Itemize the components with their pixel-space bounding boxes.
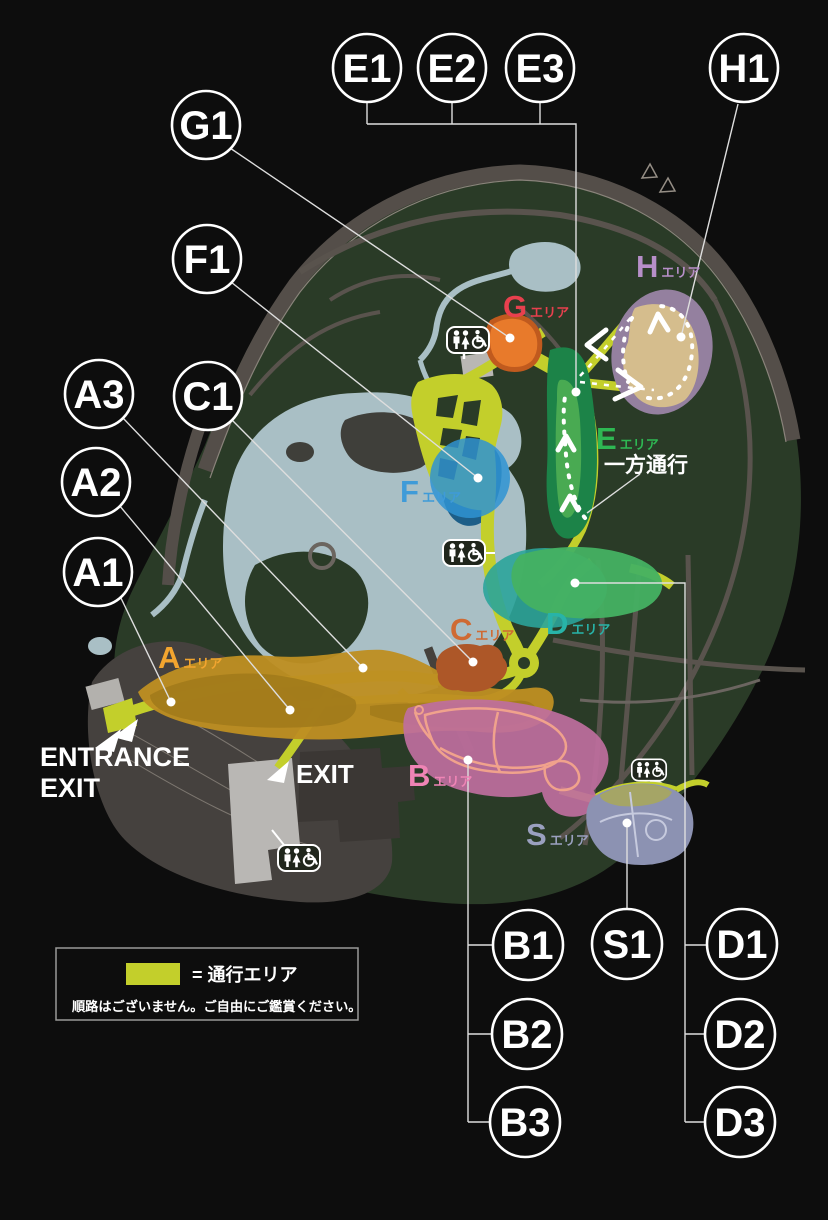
legend-box: = 通行エリア 順路はございません。ご自由にご鑑賞ください。 [56,948,361,1020]
svg-text:E3: E3 [516,47,565,91]
marker-d2: D2 [705,999,775,1069]
marker-g1: G1 [172,91,240,159]
marker-d1: D1 [707,909,777,979]
marker-a2: A2 [62,448,130,516]
restroom-icon [632,759,666,780]
marker-c1: C1 [174,362,242,430]
area-g-shape [487,316,539,369]
callout-dot-s1 [623,819,632,828]
marker-f1: F1 [173,225,241,293]
callout-dot-a3 [359,664,368,673]
callout-dot-b [464,756,473,765]
marker-h1: H1 [710,34,778,102]
svg-text:S1: S1 [603,923,652,967]
svg-text:D3: D3 [714,1101,765,1145]
svg-text:G1: G1 [179,104,232,148]
svg-text:B2: B2 [501,1013,552,1057]
callout-dot-g1 [506,334,515,343]
svg-text:D1: D1 [716,923,767,967]
svg-text:C1: C1 [182,375,233,419]
svg-text:E2: E2 [428,47,477,91]
svg-text:E1: E1 [343,47,392,91]
svg-text:B1: B1 [502,924,553,968]
svg-text:B3: B3 [499,1101,550,1145]
marker-a1: A1 [64,538,132,606]
park-illumination-map: E1 E2 E3 H1 G1 F1 A3 C1 A2 A1 B1 S1 D1 B… [0,0,828,1220]
marker-e3: E3 [506,34,574,102]
marker-s1: S1 [592,909,662,979]
callout-dot-e [572,388,581,397]
marker-e2: E2 [418,34,486,102]
callout-dot-h1 [677,333,686,342]
pond-top [509,242,581,292]
entrance-exit-label: EXIT [40,773,101,803]
svg-text:D2: D2 [714,1013,765,1057]
svg-text:A1: A1 [72,551,123,595]
one-way-label: 一方通行 [604,453,688,477]
marker-e1: E1 [333,34,401,102]
marker-b3: B3 [490,1087,560,1157]
legend-note: 順路はございません。ご自由にご鑑賞ください。 [71,998,361,1014]
svg-text:A2: A2 [70,461,121,505]
callout-dot-d [571,579,580,588]
exit-label: EXIT [296,759,354,789]
legend-text: = 通行エリア [192,964,298,985]
gate-markers [642,164,675,192]
marker-d3: D3 [705,1087,775,1157]
legend-swatch [126,963,180,985]
svg-text:A3: A3 [73,373,124,417]
pond-entrance-patch [88,637,112,655]
entrance-label: ENTRANCE [40,742,190,772]
svg-text:F1: F1 [184,238,231,282]
marker-a3: A3 [65,360,133,428]
marker-b2: B2 [492,999,562,1069]
callout-dot-a2 [286,706,295,715]
marker-b1: B1 [493,910,563,980]
callout-dot-a1 [167,698,176,707]
callout-dot-c1 [469,658,478,667]
svg-text:H1: H1 [718,47,769,91]
callout-dot-f1 [474,474,483,483]
